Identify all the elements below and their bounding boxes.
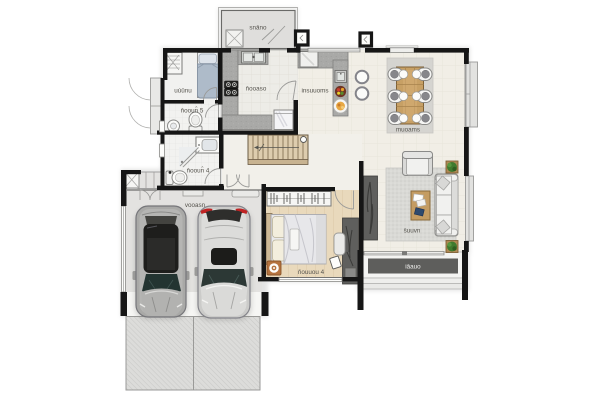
svg-text:snǎno: snǎno (249, 25, 267, 32)
svg-text:ňooun̂ 4: ňooun̂ 4 (187, 166, 210, 174)
svg-text:ňooun̂ 5: ňooun̂ 5 (181, 106, 204, 114)
svg-text:vooasn: vooasn (185, 202, 206, 209)
svg-text:muoams: muoams (396, 127, 420, 134)
svg-text:ŝuuvn: ŝuuvn (404, 228, 421, 235)
svg-text:insuuoms: insuuoms (302, 88, 329, 95)
svg-text:ňooaso: ňooaso (246, 86, 267, 93)
svg-text:uúûnu: uúûnu (174, 88, 192, 95)
svg-text:iǎauo: iǎauo (405, 264, 421, 271)
svg-text:ňouuou 4: ňouuou 4 (298, 269, 325, 276)
